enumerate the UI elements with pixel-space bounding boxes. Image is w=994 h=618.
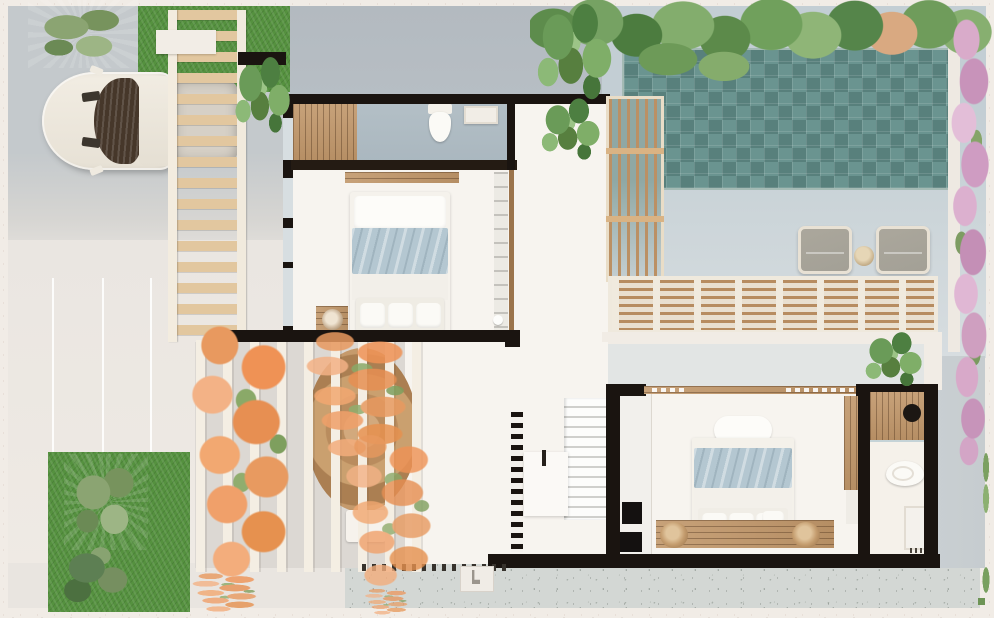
window-glass — [283, 228, 293, 262]
rear-step — [460, 566, 494, 592]
pool-side-table — [854, 246, 874, 266]
bedroom-1-wall-right — [509, 170, 514, 335]
bench-cushion — [388, 303, 413, 328]
bench-cushion — [416, 303, 441, 328]
sink-1 — [464, 106, 498, 124]
shower-drain — [903, 404, 921, 422]
bedroom-2-wall-left — [606, 384, 620, 562]
carport-pergola-rail — [168, 10, 177, 342]
sun-lounger-2 — [876, 226, 930, 274]
bathroom-wall-right — [507, 104, 515, 170]
window-glass — [283, 178, 293, 218]
paving-joint — [52, 278, 54, 463]
headboard-shelf — [345, 172, 459, 183]
car-hood-vent — [81, 137, 100, 148]
wall-shelf — [494, 172, 508, 332]
edge-shrub-dot — [978, 598, 985, 605]
timber-trellis — [608, 276, 938, 334]
wardrobe-box — [620, 532, 642, 552]
orange-bougainvillea — [332, 430, 460, 595]
window-glint — [652, 388, 686, 392]
palm-plant-front — [28, 0, 138, 68]
walkway-plant — [862, 330, 926, 390]
slat-screen — [606, 96, 664, 282]
screen-cross-beam — [606, 216, 664, 222]
rear-wall — [488, 554, 940, 568]
pink-bougainvillea — [944, 12, 994, 474]
bed-1-blanket — [352, 228, 448, 274]
carport-pergola-cap — [156, 30, 216, 54]
car — [42, 72, 176, 170]
orange-bougainvillea-spill — [182, 572, 278, 614]
wall-post — [505, 330, 520, 347]
staircase — [564, 398, 608, 520]
window-glint — [786, 388, 856, 392]
stair-guard-rail — [511, 412, 523, 552]
leafy-plant — [50, 536, 142, 616]
deck-corner-plant — [533, 0, 617, 106]
pouf-left — [660, 522, 688, 548]
edge-shrub — [982, 444, 990, 522]
faucet — [542, 450, 546, 466]
paving-joint — [150, 278, 152, 463]
bathroom-partition-wall — [291, 160, 517, 170]
sun-lounger-1 — [798, 226, 852, 274]
car-windshield — [94, 78, 144, 164]
bathroom-2-wall-right — [924, 384, 938, 560]
table-lamp — [322, 309, 343, 330]
entry-plant — [232, 54, 294, 138]
vanity-items — [910, 548, 924, 553]
courtyard-plant — [538, 96, 604, 164]
bed-1-pillows — [354, 196, 446, 230]
pool-hedge-overhang — [620, 40, 780, 88]
wardrobe-box — [622, 502, 642, 524]
bedroom-2-wall-top-left — [606, 384, 646, 396]
bench-cushion — [360, 303, 385, 328]
screen-cross-beam — [606, 148, 664, 154]
bed-1-sheet — [352, 274, 448, 300]
floor-plan-render — [0, 0, 994, 618]
shower-glass — [870, 440, 928, 442]
shower-screen-wood — [293, 104, 357, 162]
planter-wall — [924, 332, 942, 390]
bed-2-blanket — [694, 448, 792, 488]
toilet-2-seat — [892, 466, 914, 481]
pouf-right — [792, 522, 820, 548]
wash-counter — [524, 452, 568, 516]
orange-bougainvillea-spill — [358, 588, 422, 616]
stool — [493, 315, 503, 325]
